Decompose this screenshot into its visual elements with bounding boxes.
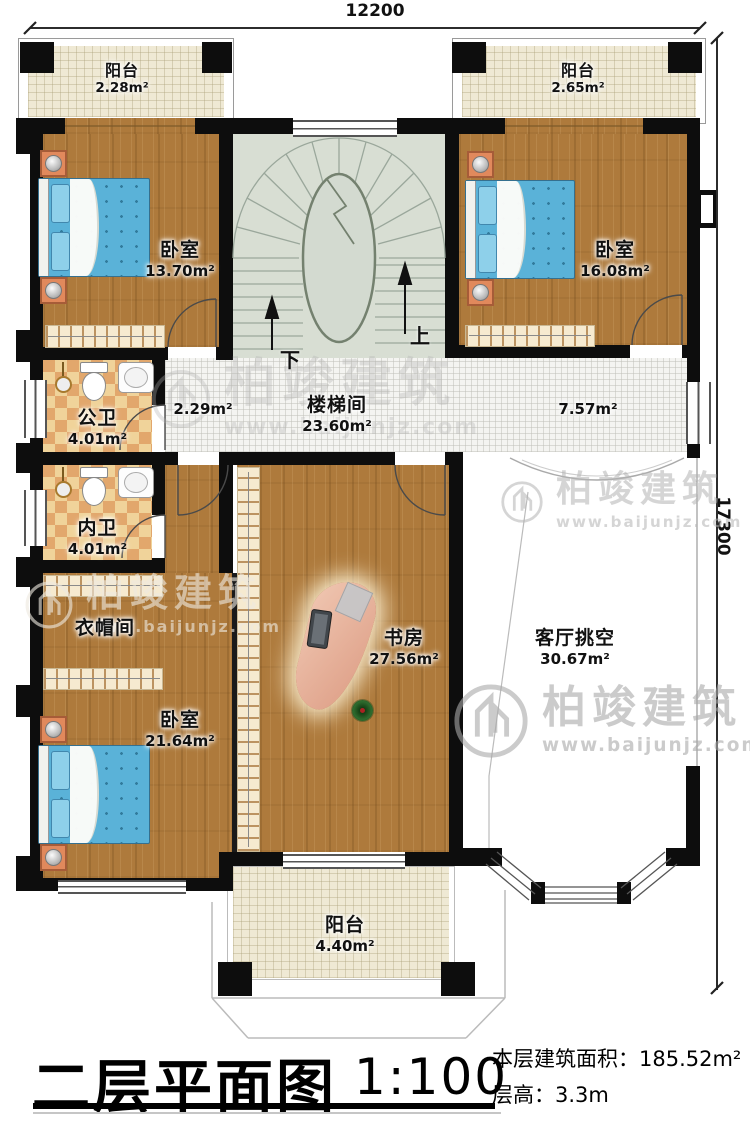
wardrobe [43,575,163,597]
wall [30,118,65,134]
drawing-scale: 1:100 [354,1048,508,1106]
wall [219,452,233,573]
room-label-cloakroom: 衣帽间 [45,618,165,640]
shower-head-icon [55,481,72,498]
balcony-tr-opening [505,118,643,134]
window [58,880,186,894]
dimension-right: 17300 [713,491,733,561]
page-title: 二层平面图 [32,1040,337,1123]
watermark-url: www.baijunjz.com [542,735,750,756]
wall [233,118,293,134]
wardrobe [45,325,165,348]
wall [16,856,30,891]
nightstand [40,277,67,304]
room-label-balcony-bottom: 阳台 4.40m² [275,915,415,954]
pillow [478,234,497,273]
wall [682,345,700,358]
window [293,120,397,137]
pillow [51,184,70,223]
dimension-top: 12200 [0,1,750,21]
floor-height-value: 3.3m [555,1083,609,1107]
wardrobe [465,325,595,347]
shower-head-icon [55,376,72,393]
column [218,962,252,996]
wall [687,118,700,358]
floor-height-label: 层高： [492,1083,555,1107]
wall [16,118,30,154]
sink [118,467,154,498]
window [686,382,711,444]
bed-headboard [39,179,49,276]
wall [219,852,233,891]
nightstand [40,844,67,871]
watermark-brand: 柏竣建筑 [542,686,750,730]
wall [687,358,700,382]
bed-sheet [70,179,99,276]
column [202,42,232,73]
nightstand [40,716,67,743]
watermark-logo-icon [500,480,544,524]
bed [38,745,150,844]
watermark-logo-icon [452,682,530,760]
bed-headboard [39,746,49,843]
stair-down-label: 下 [280,344,300,373]
floor-height-info: 层高：3.3m [492,1079,609,1109]
nightstand [467,279,494,306]
bed-sheet [497,181,526,278]
wardrobe [237,467,260,852]
pillow [478,186,497,225]
area-label-hall-left: 2.29m² [153,400,253,418]
wall [16,685,30,717]
sink [118,362,154,393]
wall [30,452,178,465]
column [452,42,486,73]
wall [219,118,233,358]
wall [16,443,30,473]
window [283,854,405,869]
wall [216,347,233,360]
column [20,42,54,73]
floor-plan-page: 12200 17300 [0,0,750,1123]
floor-area-label: 本层建筑面积： [492,1047,639,1071]
room-label-balcony-tr: 阳台 2.65m² [508,62,648,96]
floor-area-value: 185.52m² [639,1047,741,1071]
wall [16,557,30,587]
window [24,490,47,546]
column [668,42,702,73]
room-label-living-void: 客厅挑空 30.67m² [505,628,645,667]
title-underline-light [33,1112,501,1114]
wall [397,118,445,134]
room-label-bedroom-bl: 卧室 21.64m² [110,710,250,749]
wall [30,347,168,360]
room-label-balcony-tl: 阳台 2.28m² [52,62,192,96]
wall [445,118,459,358]
suite-entry-floor [165,465,219,573]
room-label-bath-public: 公卫 4.01m² [45,408,150,447]
dimension-top-line [30,27,700,29]
pillow [51,232,70,271]
wall [30,560,165,573]
balcony-tl-opening [65,118,195,134]
room-label-bedroom-tl: 卧室 13.70m² [110,240,250,279]
wardrobe [43,668,163,690]
watermark: 柏竣建筑www.baijunjz.com [500,472,742,531]
nightstand [40,150,67,177]
bed-headboard [466,181,476,278]
pillow [51,751,70,790]
wall [16,330,30,362]
title-underline [33,1103,495,1109]
column [441,962,475,996]
room-label-study: 书房 27.56m² [334,628,474,667]
room-label-bath-inner: 内卫 4.01m² [45,518,150,557]
wall [687,444,700,458]
room-label-bedroom-tr: 卧室 16.08m² [545,240,685,279]
nightstand [467,151,494,178]
flue-inner [701,195,713,223]
wall [405,852,463,866]
wall [233,452,395,465]
bay-window [458,848,700,904]
pillow [51,799,70,838]
stair-up-label: 上 [410,320,430,349]
plant [352,700,373,721]
room-label-stairwell: 楼梯间 23.60m² [267,395,407,434]
wall [686,766,700,858]
bed-sheet [70,746,99,843]
watermark: 柏竣建筑www.baijunjz.com [452,682,750,760]
window [24,380,47,438]
wall [459,118,505,134]
area-label-hall-right: 7.57m² [538,400,638,418]
floor-area-info: 本层建筑面积：185.52m² [492,1043,741,1073]
